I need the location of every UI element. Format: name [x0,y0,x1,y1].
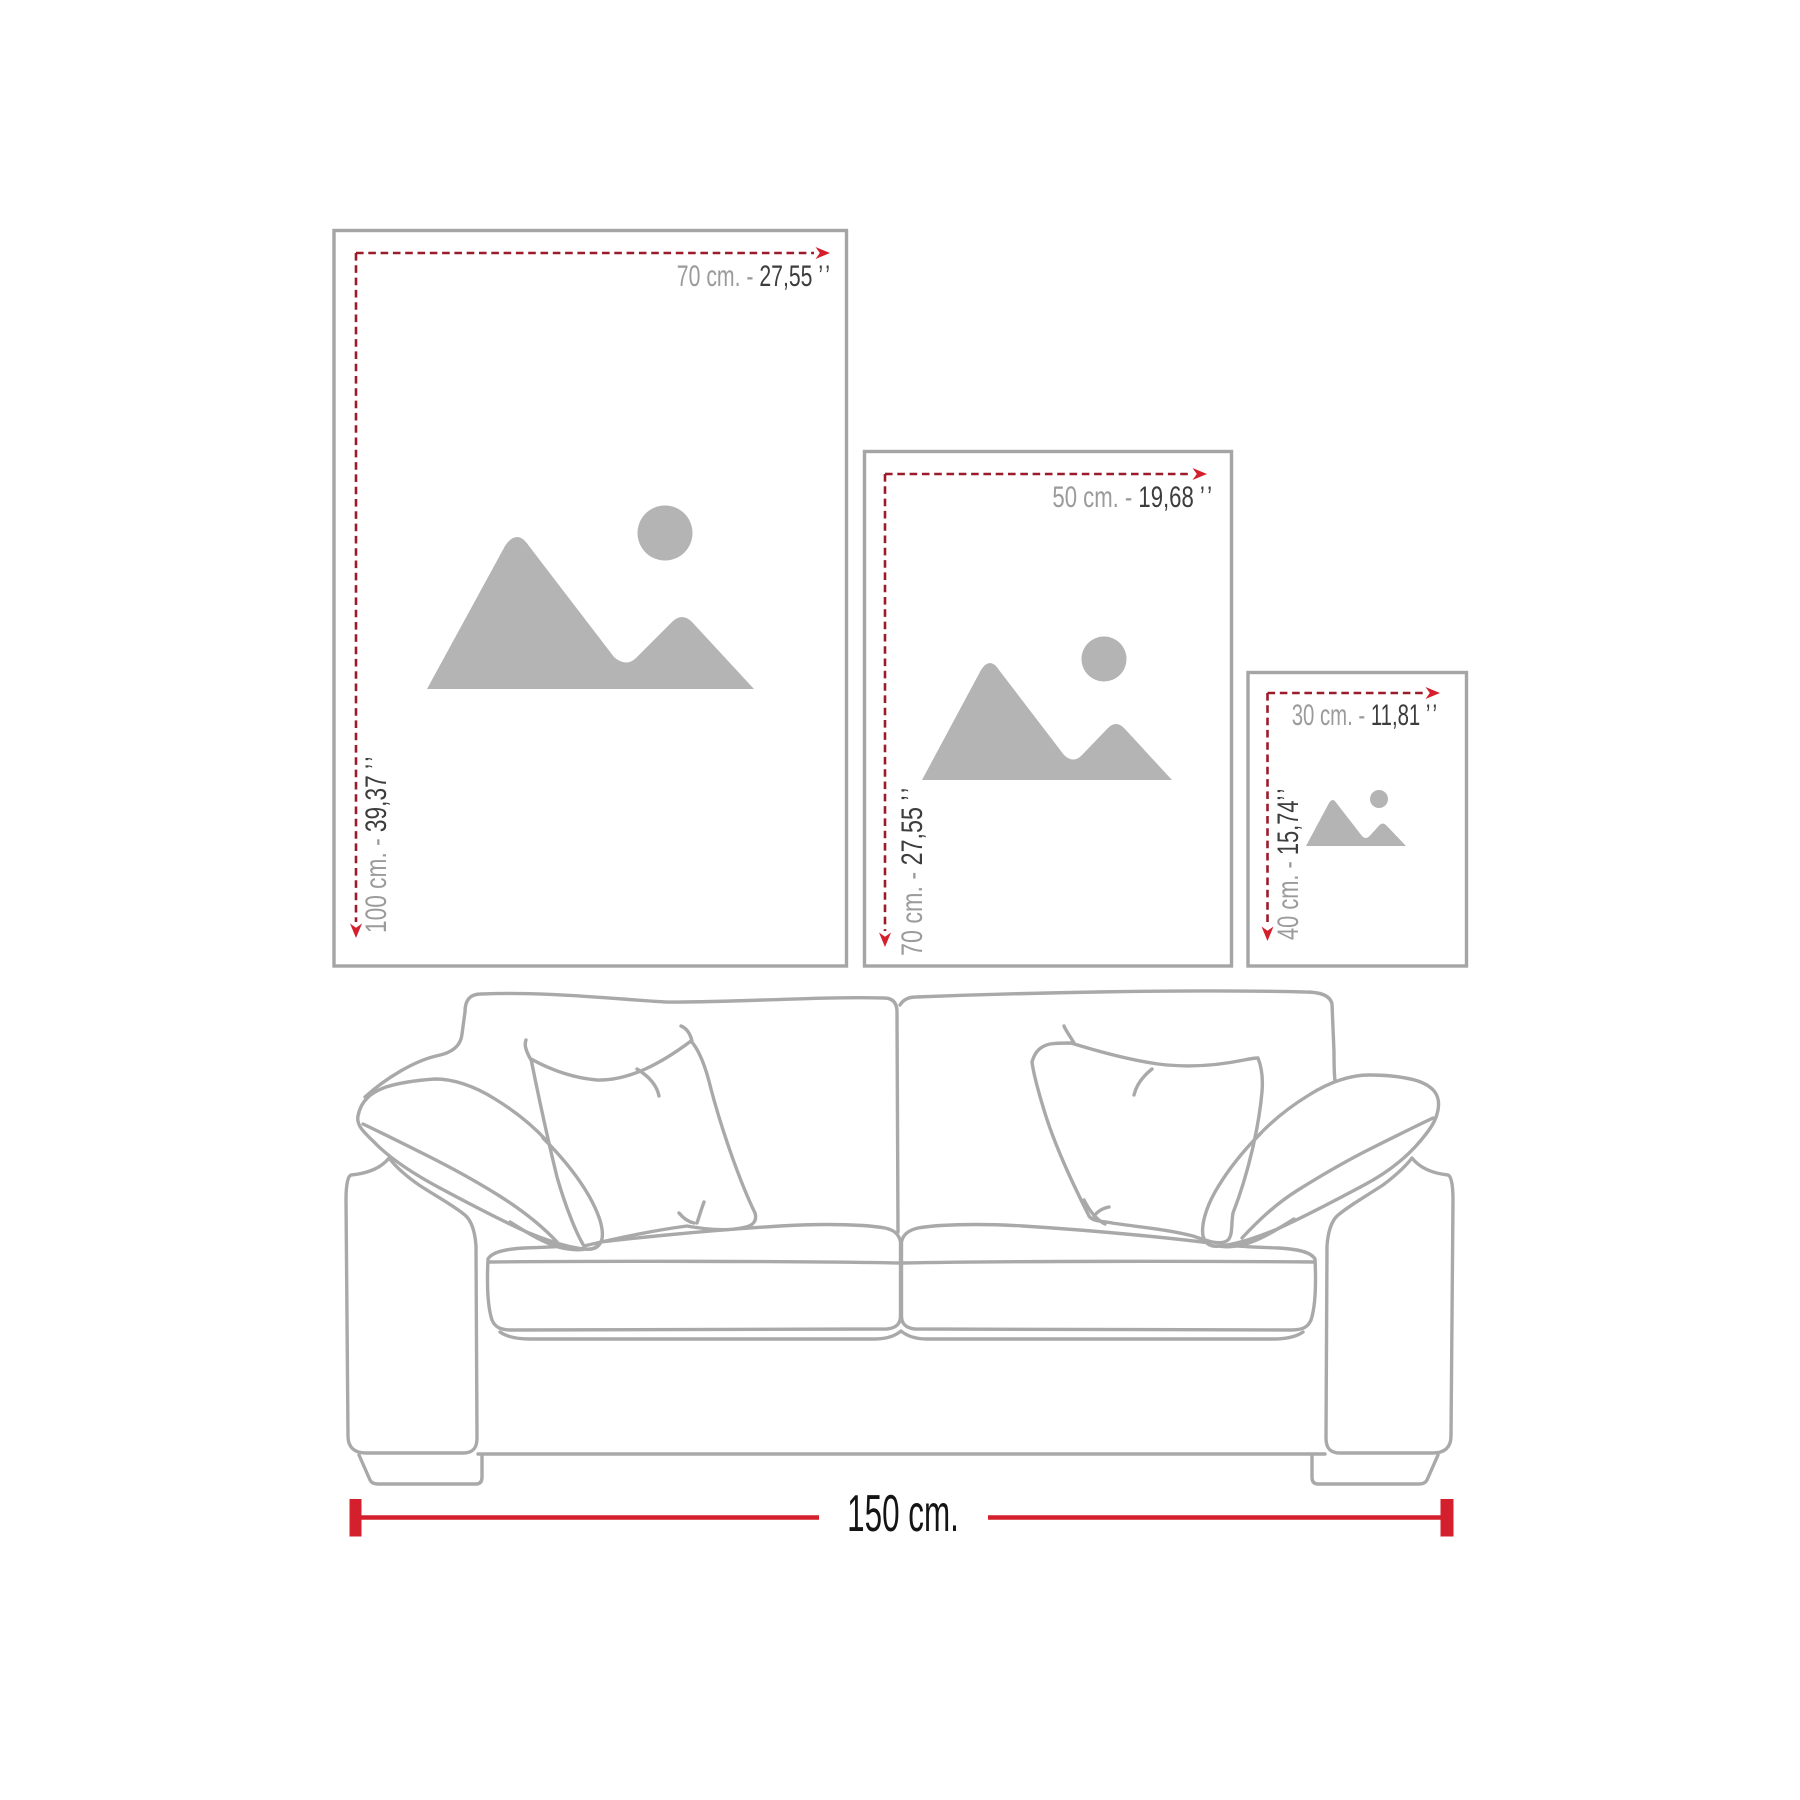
svg-text:70 cm. - 27,55 ’’: 70 cm. - 27,55 ’’ [677,261,830,293]
svg-text:30 cm. - 11,81 ’’: 30 cm. - 11,81 ’’ [1292,699,1437,732]
svg-text:40 cm. - 15,74’’: 40 cm. - 15,74’’ [1273,789,1305,940]
svg-text:150 cm.: 150 cm. [847,1485,959,1543]
svg-text:100 cm. - 39,37 ’’: 100 cm. - 39,37 ’’ [359,757,393,933]
svg-text:70 cm. - 27,55 ’’: 70 cm. - 27,55 ’’ [895,788,928,956]
svg-text:50 cm. - 19,68 ’’: 50 cm. - 19,68 ’’ [1052,480,1212,514]
